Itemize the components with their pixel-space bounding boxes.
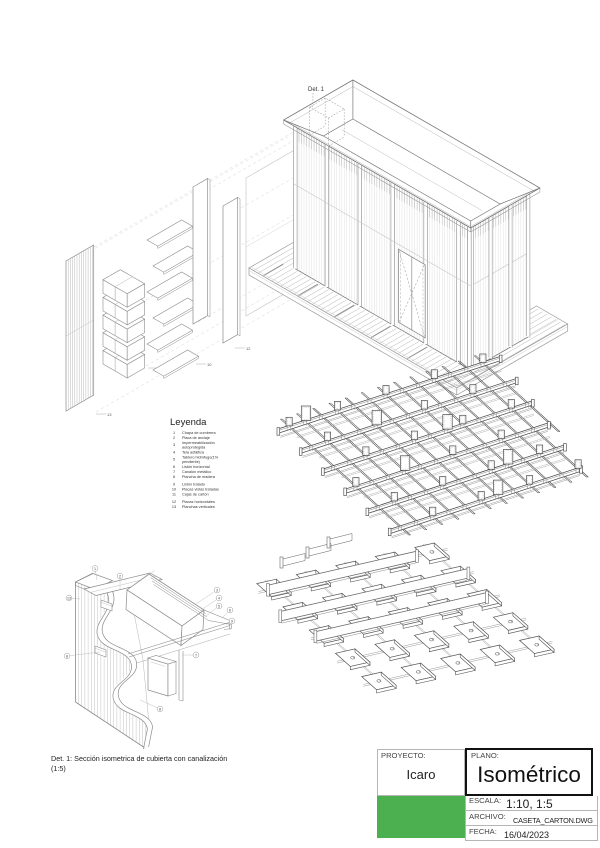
svg-text:6: 6 xyxy=(229,608,231,612)
svg-text:10: 10 xyxy=(172,488,176,492)
svg-text:2: 2 xyxy=(173,436,175,440)
svg-text:Placa de anclaje: Placa de anclaje xyxy=(182,436,210,440)
svg-text:11: 11 xyxy=(172,493,176,497)
svg-text:(1:5): (1:5) xyxy=(51,764,66,773)
svg-text:13: 13 xyxy=(172,505,176,509)
svg-text:3: 3 xyxy=(216,588,218,592)
svg-text:Chapa de cumbrera: Chapa de cumbrera xyxy=(182,431,216,435)
svg-text:Impermeabilización: Impermeabilización xyxy=(182,441,215,445)
svg-text:12: 12 xyxy=(172,500,176,504)
svg-text:Tela asfáltica: Tela asfáltica xyxy=(182,451,205,455)
svg-text:2: 2 xyxy=(119,574,121,578)
svg-text:5: 5 xyxy=(218,604,220,608)
svg-text:Placas horizontales: Placas horizontales xyxy=(182,500,215,504)
svg-text:8: 8 xyxy=(159,707,161,711)
svg-text:6: 6 xyxy=(173,465,175,469)
svg-text:Listón horizontal: Listón horizontal xyxy=(182,465,210,469)
svg-text:Cajas de cartón: Cajas de cartón xyxy=(182,493,209,497)
svg-text:Planchas verticales: Planchas verticales xyxy=(182,505,215,509)
svg-text:9: 9 xyxy=(173,483,175,487)
svg-text:10: 10 xyxy=(207,362,212,367)
svg-text:9: 9 xyxy=(231,619,233,623)
svg-text:autoprotegida: autoprotegida xyxy=(182,446,206,450)
svg-text:Listón tratado: Listón tratado xyxy=(182,483,205,487)
svg-text:13: 13 xyxy=(67,596,71,600)
svg-text:7: 7 xyxy=(195,653,197,657)
svg-text:Canalón metálico: Canalón metálico xyxy=(182,470,211,474)
svg-text:pendiente): pendiente) xyxy=(182,460,201,464)
svg-text:Det. 1: Det. 1 xyxy=(308,87,325,93)
svg-text:Leyenda: Leyenda xyxy=(170,417,207,428)
svg-text:1: 1 xyxy=(173,431,175,435)
svg-text:12: 12 xyxy=(246,346,251,351)
svg-text:7: 7 xyxy=(173,470,175,474)
svg-text:1: 1 xyxy=(94,567,96,571)
svg-text:3: 3 xyxy=(173,443,175,447)
svg-text:13: 13 xyxy=(107,412,112,417)
svg-text:Plancha de madera: Plancha de madera xyxy=(182,475,216,479)
svg-text:8: 8 xyxy=(66,654,68,658)
svg-text:4: 4 xyxy=(173,451,175,455)
svg-text:4: 4 xyxy=(218,596,220,600)
svg-text:Placas vistas tratadas: Placas vistas tratadas xyxy=(182,488,219,492)
svg-text:Det. 1: Sección isometrica de: Det. 1: Sección isometrica de cubierta c… xyxy=(51,754,227,763)
svg-text:Tablero hidrófugo(1%: Tablero hidrófugo(1% xyxy=(182,456,219,460)
svg-text:5: 5 xyxy=(173,458,175,462)
svg-text:8: 8 xyxy=(173,475,175,479)
